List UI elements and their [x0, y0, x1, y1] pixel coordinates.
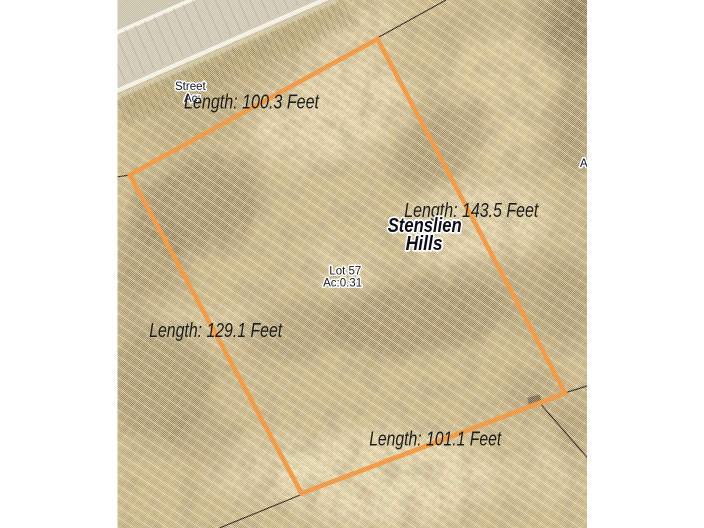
svg-text:Lot 57: Lot 57: [329, 266, 361, 278]
svg-text:Length: 129.1 Feet: Length: 129.1 Feet: [149, 320, 283, 342]
svg-text:Ac:0.31: Ac:0.31: [323, 277, 362, 289]
svg-text:Length: 100.3 Feet: Length: 100.3 Feet: [184, 91, 320, 113]
svg-text:Hills: Hills: [406, 233, 443, 255]
svg-text:Length: 101.1 Feet: Length: 101.1 Feet: [369, 429, 502, 451]
